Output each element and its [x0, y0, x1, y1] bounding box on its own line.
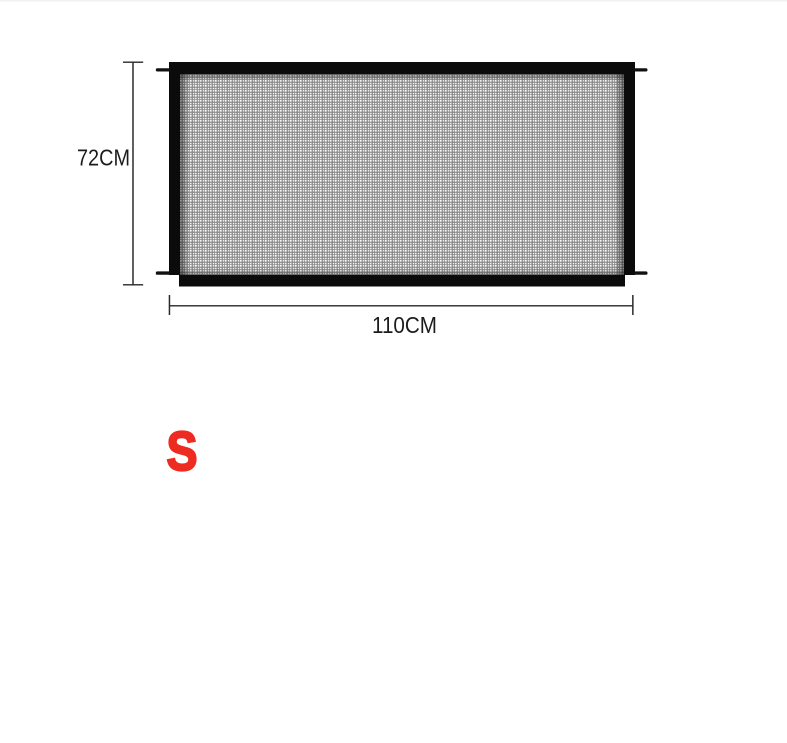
svg-text:72CM: 72CM: [77, 145, 130, 171]
svg-text:S: S: [167, 421, 198, 482]
svg-text:110CM: 110CM: [372, 312, 437, 338]
